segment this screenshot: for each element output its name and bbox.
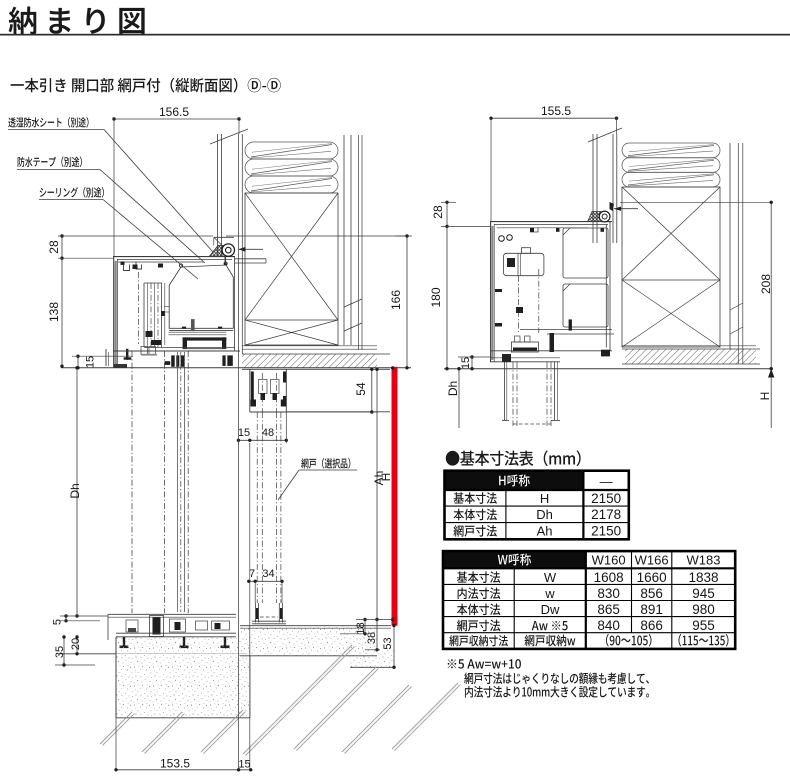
svg-text:2150: 2150 xyxy=(591,524,621,539)
svg-text:Dh: Dh xyxy=(536,507,553,522)
svg-text:35: 35 xyxy=(54,646,66,658)
svg-text:891: 891 xyxy=(640,602,663,617)
svg-text:W: W xyxy=(544,570,557,585)
svg-text:28: 28 xyxy=(431,205,445,219)
svg-text:153.5: 153.5 xyxy=(160,757,190,771)
svg-text:38: 38 xyxy=(366,632,378,644)
svg-text:866: 866 xyxy=(640,618,663,633)
svg-text:945: 945 xyxy=(692,586,715,601)
svg-text:48: 48 xyxy=(262,427,274,439)
svg-text:28: 28 xyxy=(47,240,61,254)
svg-text:156.5: 156.5 xyxy=(159,105,189,119)
svg-text:20: 20 xyxy=(70,638,82,650)
svg-text:—: — xyxy=(600,474,613,489)
svg-text:180: 180 xyxy=(429,287,443,307)
svg-text:1660: 1660 xyxy=(637,570,667,585)
svg-text:15: 15 xyxy=(85,356,97,368)
svg-text:166: 166 xyxy=(389,290,403,310)
svg-text:34: 34 xyxy=(262,568,274,580)
svg-text:2150: 2150 xyxy=(591,491,621,506)
svg-text:54: 54 xyxy=(354,382,368,396)
svg-text:H: H xyxy=(379,473,393,482)
svg-text:865: 865 xyxy=(597,602,620,617)
svg-text:15: 15 xyxy=(238,759,250,771)
svg-text:5: 5 xyxy=(52,619,64,625)
svg-text:W166: W166 xyxy=(635,553,669,568)
svg-text:840: 840 xyxy=(597,618,620,633)
svg-text:1608: 1608 xyxy=(594,570,624,585)
svg-text:955: 955 xyxy=(692,618,715,633)
svg-text:Ah: Ah xyxy=(537,524,553,539)
svg-text:w: w xyxy=(544,586,555,601)
svg-text:Dw: Dw xyxy=(541,602,560,617)
svg-text:830: 830 xyxy=(597,586,620,601)
svg-text:W183: W183 xyxy=(687,553,721,568)
svg-text:856: 856 xyxy=(640,586,663,601)
svg-text:W160: W160 xyxy=(592,553,626,568)
svg-text:H: H xyxy=(540,491,549,506)
svg-text:H: H xyxy=(758,392,772,401)
svg-text:138: 138 xyxy=(47,302,61,322)
svg-text:2178: 2178 xyxy=(591,507,621,522)
svg-text:15: 15 xyxy=(238,427,250,439)
svg-text:155.5: 155.5 xyxy=(541,104,571,118)
svg-text:Dh: Dh xyxy=(68,483,82,498)
svg-text:Dh: Dh xyxy=(446,381,460,396)
svg-text:15: 15 xyxy=(460,357,472,369)
svg-text:980: 980 xyxy=(692,602,715,617)
svg-text:1838: 1838 xyxy=(688,570,718,585)
svg-text:53: 53 xyxy=(382,637,394,649)
svg-text:208: 208 xyxy=(759,274,773,294)
